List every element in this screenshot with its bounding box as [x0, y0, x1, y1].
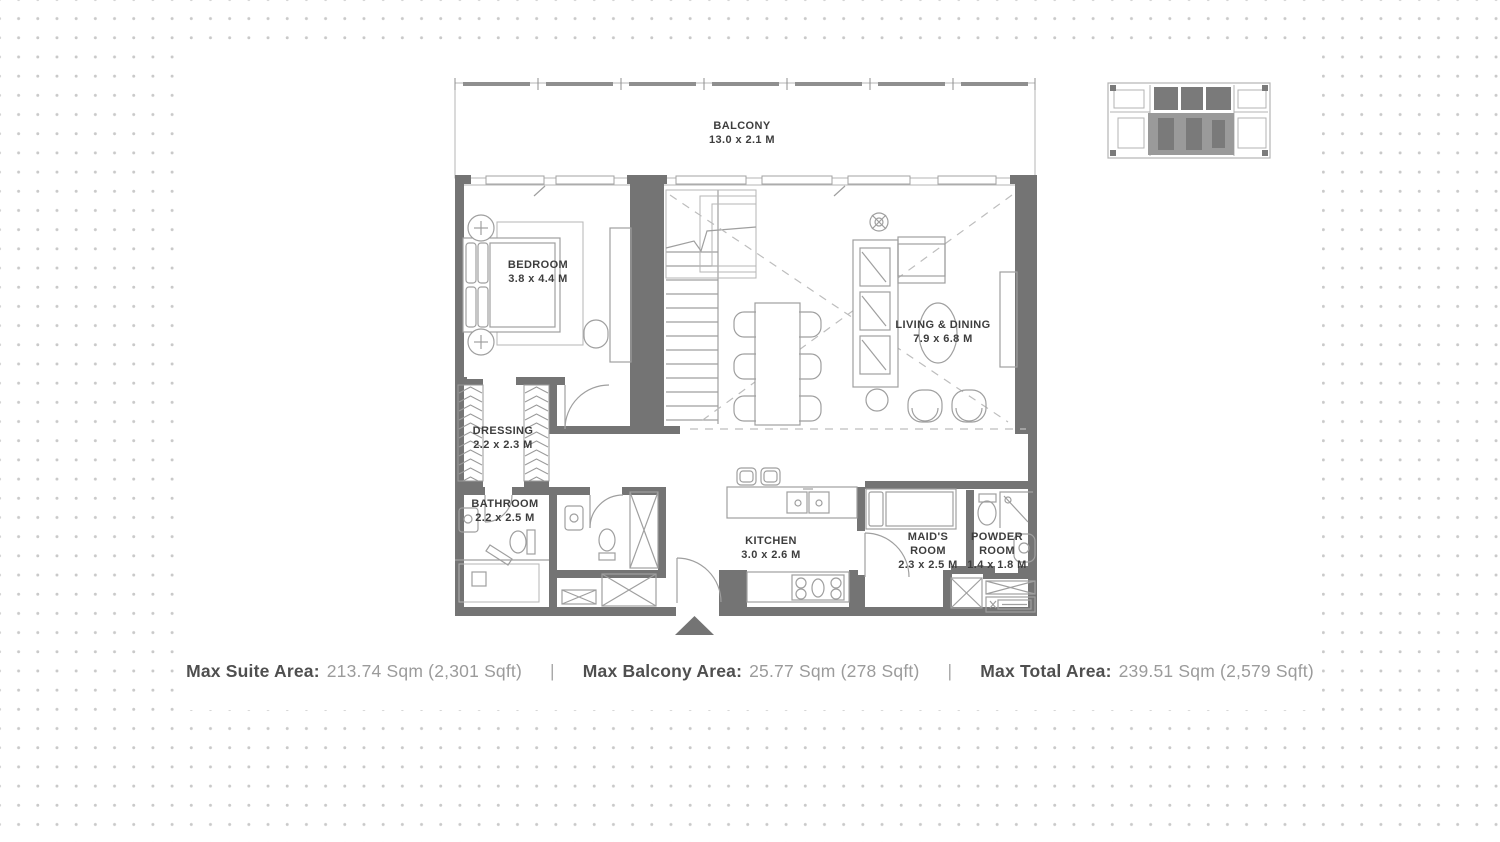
- stove-icon: [792, 575, 844, 600]
- total-area-value: 239.51 Sqm (2,579 Sqft): [1119, 661, 1314, 681]
- suite-area: Max Suite Area:213.74 Sqm (2,301 Sqft): [186, 661, 522, 682]
- room-label-powder-room-2: ROOM: [979, 545, 1015, 557]
- room-dims-balcony: 13.0 x 2.1 M: [709, 134, 775, 146]
- dining-table-icon: [734, 303, 821, 425]
- entrance-arrow-icon: [675, 616, 714, 635]
- total-area-label: Max Total Area:: [980, 661, 1111, 681]
- kitchen-counter-icon: [747, 572, 849, 602]
- room-label-living-dining: LIVING & DINING: [895, 319, 990, 331]
- service-boxes-right: [951, 578, 1035, 612]
- room-label-kitchen: KITCHEN: [745, 535, 797, 547]
- guest-bathroom-fixtures: [565, 492, 658, 568]
- key-plan: [1108, 83, 1270, 158]
- stairs-icon: [666, 190, 756, 424]
- bathtub-icon: [459, 564, 539, 602]
- room-dims-dressing: 2.2 x 2.3 M: [473, 439, 532, 451]
- ceiling-fan-icon: [870, 213, 888, 231]
- room-label-maids-room-2: ROOM: [910, 545, 946, 557]
- room-dims-maids-room: 2.3 x 2.5 M: [898, 559, 957, 571]
- sink-icon: [565, 506, 583, 530]
- window-wall: [463, 176, 1028, 196]
- separator: |: [550, 661, 555, 682]
- balcony-area-value: 25.77 Sqm (278 Sqft): [749, 661, 919, 681]
- room-dims-kitchen: 3.0 x 2.6 M: [741, 549, 800, 561]
- room-label-bedroom: BEDROOM: [508, 259, 568, 271]
- balcony-area-label: Max Balcony Area:: [583, 661, 742, 681]
- room-dims-bedroom: 3.8 x 4.4 M: [508, 273, 567, 285]
- room-label-balcony: BALCONY: [713, 120, 770, 132]
- room-dims-living-dining: 7.9 x 6.8 M: [913, 333, 972, 345]
- bedroom-door-arc: [565, 385, 609, 429]
- tv-unit-icon: [1000, 272, 1017, 367]
- total-area: Max Total Area:239.51 Sqm (2,579 Sqft): [980, 661, 1314, 682]
- suite-area-value: 213.74 Sqm (2,301 Sqft): [327, 661, 522, 681]
- balcony-area: Max Balcony Area:25.77 Sqm (278 Sqft): [583, 661, 920, 682]
- armchair-icon: [952, 390, 986, 422]
- area-summary: Max Suite Area:213.74 Sqm (2,301 Sqft) |…: [178, 654, 1322, 688]
- separator: |: [947, 661, 952, 682]
- entry-door-arc: [677, 558, 721, 603]
- service-boxes-left: [562, 574, 656, 606]
- balcony-railing: [455, 78, 1035, 90]
- room-label-powder-room-1: POWDER: [971, 531, 1023, 543]
- toilet-icon: [510, 530, 535, 554]
- page: { "colors": { "wall": "#747474", "furnit…: [0, 0, 1500, 842]
- guest-bath-door-arc: [590, 495, 623, 528]
- side-table-icon: [866, 389, 888, 411]
- bath-mat-icon: [486, 545, 512, 565]
- room-label-dressing: DRESSING: [473, 425, 534, 437]
- shaft-icon: [630, 492, 658, 568]
- suite-area-label: Max Suite Area:: [186, 661, 320, 681]
- room-label-bathroom: BATHROOM: [471, 498, 538, 510]
- armchair-icon: [908, 390, 942, 422]
- room-label-maids-room-1: MAID'S: [908, 531, 948, 543]
- room-dims-powder-room: 1.4 x 1.8 M: [967, 559, 1026, 571]
- maids-bed-icon: [866, 489, 956, 529]
- toilet-icon: [599, 529, 615, 560]
- toilet-icon: [978, 494, 996, 525]
- floor-plan: BALCONY 13.0 x 2.1 M BEDROOM 3.8 x 4.4 M…: [0, 0, 1500, 842]
- kitchen-island-icon: [727, 468, 857, 518]
- desk-icon: [584, 228, 631, 362]
- room-dims-bathroom: 2.2 x 2.5 M: [475, 512, 534, 524]
- bed-icon: [463, 215, 560, 355]
